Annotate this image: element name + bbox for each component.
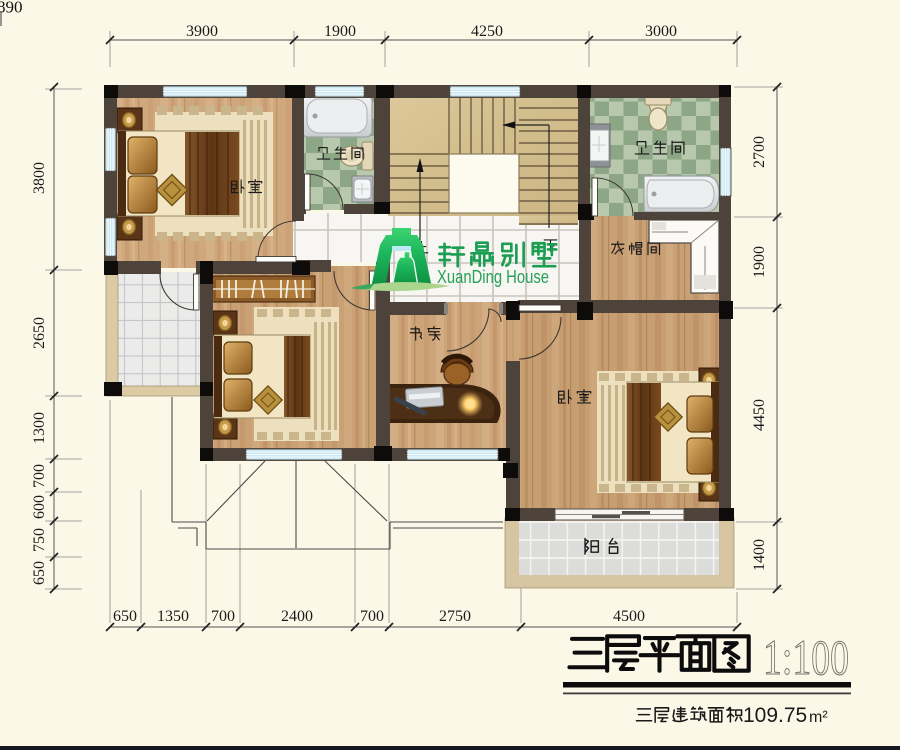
svg-text:1400: 1400 <box>751 539 768 571</box>
svg-text:1300: 1300 <box>31 412 48 444</box>
svg-text:650: 650 <box>113 608 137 625</box>
svg-text:1900: 1900 <box>751 246 768 278</box>
svg-text:1900: 1900 <box>324 23 356 40</box>
svg-text:4450: 4450 <box>751 399 768 431</box>
svg-text:2750: 2750 <box>439 608 471 625</box>
svg-text:890: 890 <box>0 0 23 17</box>
svg-text:700: 700 <box>211 608 235 625</box>
svg-text:1:100: 1:100 <box>763 629 849 685</box>
svg-text:2400: 2400 <box>281 608 313 625</box>
svg-text:2650: 2650 <box>31 317 48 349</box>
svg-text:700: 700 <box>31 464 48 488</box>
svg-text:XuanDing House: XuanDing House <box>437 266 549 287</box>
svg-text:4250: 4250 <box>471 23 503 40</box>
svg-text:3800: 3800 <box>31 162 48 194</box>
svg-text:600: 600 <box>31 495 48 519</box>
svg-text:700: 700 <box>360 608 384 625</box>
svg-text:750: 750 <box>31 528 48 552</box>
svg-text:2700: 2700 <box>751 136 768 168</box>
svg-text:1350: 1350 <box>157 608 189 625</box>
svg-text:3000: 3000 <box>645 23 677 40</box>
svg-text:m²: m² <box>809 709 828 726</box>
svg-text:650: 650 <box>31 561 48 585</box>
svg-text:4500: 4500 <box>613 608 645 625</box>
svg-text:3900: 3900 <box>186 23 218 40</box>
svg-text:109.75: 109.75 <box>743 704 807 727</box>
